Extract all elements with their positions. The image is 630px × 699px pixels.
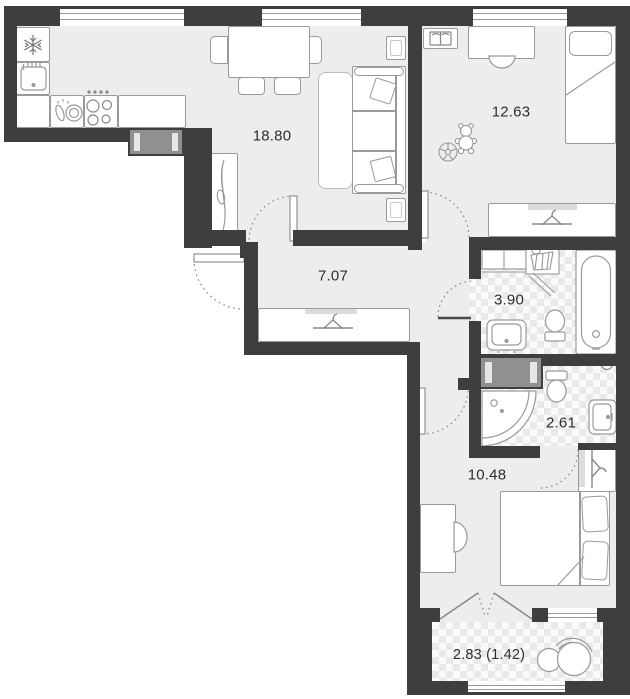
radiator-kitchen-slot-right — [172, 133, 178, 151]
hanger-icon — [532, 210, 572, 224]
wall-balcony-right-inner — [603, 614, 616, 681]
bedroom-desk-chair — [454, 522, 467, 552]
wall-entrance-left — [184, 230, 246, 246]
window-bedroom-balcony-line1 — [548, 613, 597, 614]
wall-shower-bottom — [469, 446, 540, 458]
room-label-living-kitchen: 18.80 — [253, 128, 292, 145]
child-door-leaf — [421, 191, 428, 238]
bedroom-door-arc — [422, 388, 468, 434]
ball-icon — [439, 143, 457, 161]
radiator-bathroom-slot-right — [530, 362, 537, 383]
wall-bath-left-lower — [469, 321, 481, 458]
washbasin-icon — [487, 320, 526, 352]
wall-child-bottom — [469, 237, 616, 250]
hanger-icon — [592, 448, 606, 488]
wall-bottom-1 — [407, 681, 468, 695]
balcony-door-leaves — [440, 593, 532, 619]
wall-hall-bottom — [244, 342, 420, 355]
window-balcony-bottom-line1 — [468, 685, 565, 686]
balcony-table — [558, 643, 591, 676]
radiator-kitchen-slot-left — [134, 133, 140, 151]
window-child — [473, 6, 567, 26]
child-bed-fold — [566, 62, 615, 95]
wall-balcony-left-inner — [420, 622, 432, 681]
room-label-hallway: 7.07 — [318, 268, 348, 285]
child-desk-chair — [489, 56, 515, 68]
floor-plan: 18.80 12.63 7.07 3.90 2.61 10.48 2.83 (1… — [0, 0, 630, 699]
radiator-bathroom-slot-left — [485, 362, 492, 383]
wall-balcony-stub-left — [420, 608, 440, 622]
room-label-bathroom: 3.90 — [494, 292, 524, 309]
sink-icon — [21, 63, 46, 90]
window-living-outer — [262, 6, 361, 9]
window-balcony-bottom-outer — [468, 692, 565, 695]
wall-balcony-stub-right — [532, 608, 548, 622]
window-living-line1 — [262, 13, 361, 14]
wall-hall-left — [244, 248, 258, 355]
room-label-bedroom: 10.48 — [468, 467, 507, 484]
wall-wing-left — [407, 342, 420, 695]
basket-icon — [526, 248, 559, 274]
window-kitchen-outer — [60, 6, 184, 9]
room-label-child-bedroom: 12.63 — [492, 104, 531, 121]
wall-bath-left-upper — [469, 250, 481, 279]
open-book-icon — [430, 32, 451, 45]
window-living-line2 — [262, 19, 361, 20]
wall-wardrobe-top — [578, 443, 616, 450]
wall-left — [4, 6, 17, 142]
window-kitchen — [60, 6, 184, 26]
window-child-outer — [473, 6, 567, 9]
window-child-line1 — [473, 13, 567, 14]
window-bedroom-balcony — [548, 609, 597, 622]
room-label-balcony: 2.83 (1.42) — [453, 647, 525, 663]
child-door-arc — [425, 192, 469, 238]
shower-tray-icon — [482, 391, 536, 446]
window-bedroom-balcony-line2 — [548, 617, 597, 618]
window-kitchen-line1 — [60, 13, 184, 14]
wall-bedroom-door-jamb — [458, 378, 469, 390]
shower-door-arc — [540, 450, 578, 488]
room-label-shower-room: 2.61 — [546, 415, 576, 432]
washbasin-icon — [589, 400, 616, 434]
window-balcony-bottom-line2 — [468, 689, 565, 690]
burners-icon — [87, 91, 112, 125]
toilet-icon — [545, 310, 565, 341]
balcony-furniture — [538, 638, 593, 675]
bathroom-door-arc — [438, 281, 473, 317]
entrance-door-leaf — [194, 254, 244, 262]
wall-living-child-divider — [408, 26, 422, 250]
wall-right — [616, 6, 630, 695]
dishes-icon — [54, 99, 82, 122]
window-kitchen-line2 — [60, 19, 184, 20]
plant-leaf-icon — [216, 160, 225, 230]
wall-top-3 — [361, 6, 473, 26]
balcony-door-dotted — [478, 593, 494, 616]
wall-hall-top — [293, 230, 408, 246]
bedroom-bed-fold — [557, 557, 584, 586]
bathroom-fixtures — [482, 248, 616, 370]
hanger-icon — [313, 314, 353, 328]
window-living — [262, 6, 361, 26]
mirror-icon — [529, 273, 555, 296]
snowflake-icon — [24, 35, 41, 55]
toilet-icon — [546, 371, 567, 402]
window-child-line2 — [473, 19, 567, 20]
bathtub-icon — [576, 250, 616, 354]
wall-top-2 — [184, 6, 262, 26]
entrance-door-arc — [194, 259, 244, 309]
living-door-arc — [249, 196, 294, 241]
teddy-bear-icon — [455, 124, 476, 154]
